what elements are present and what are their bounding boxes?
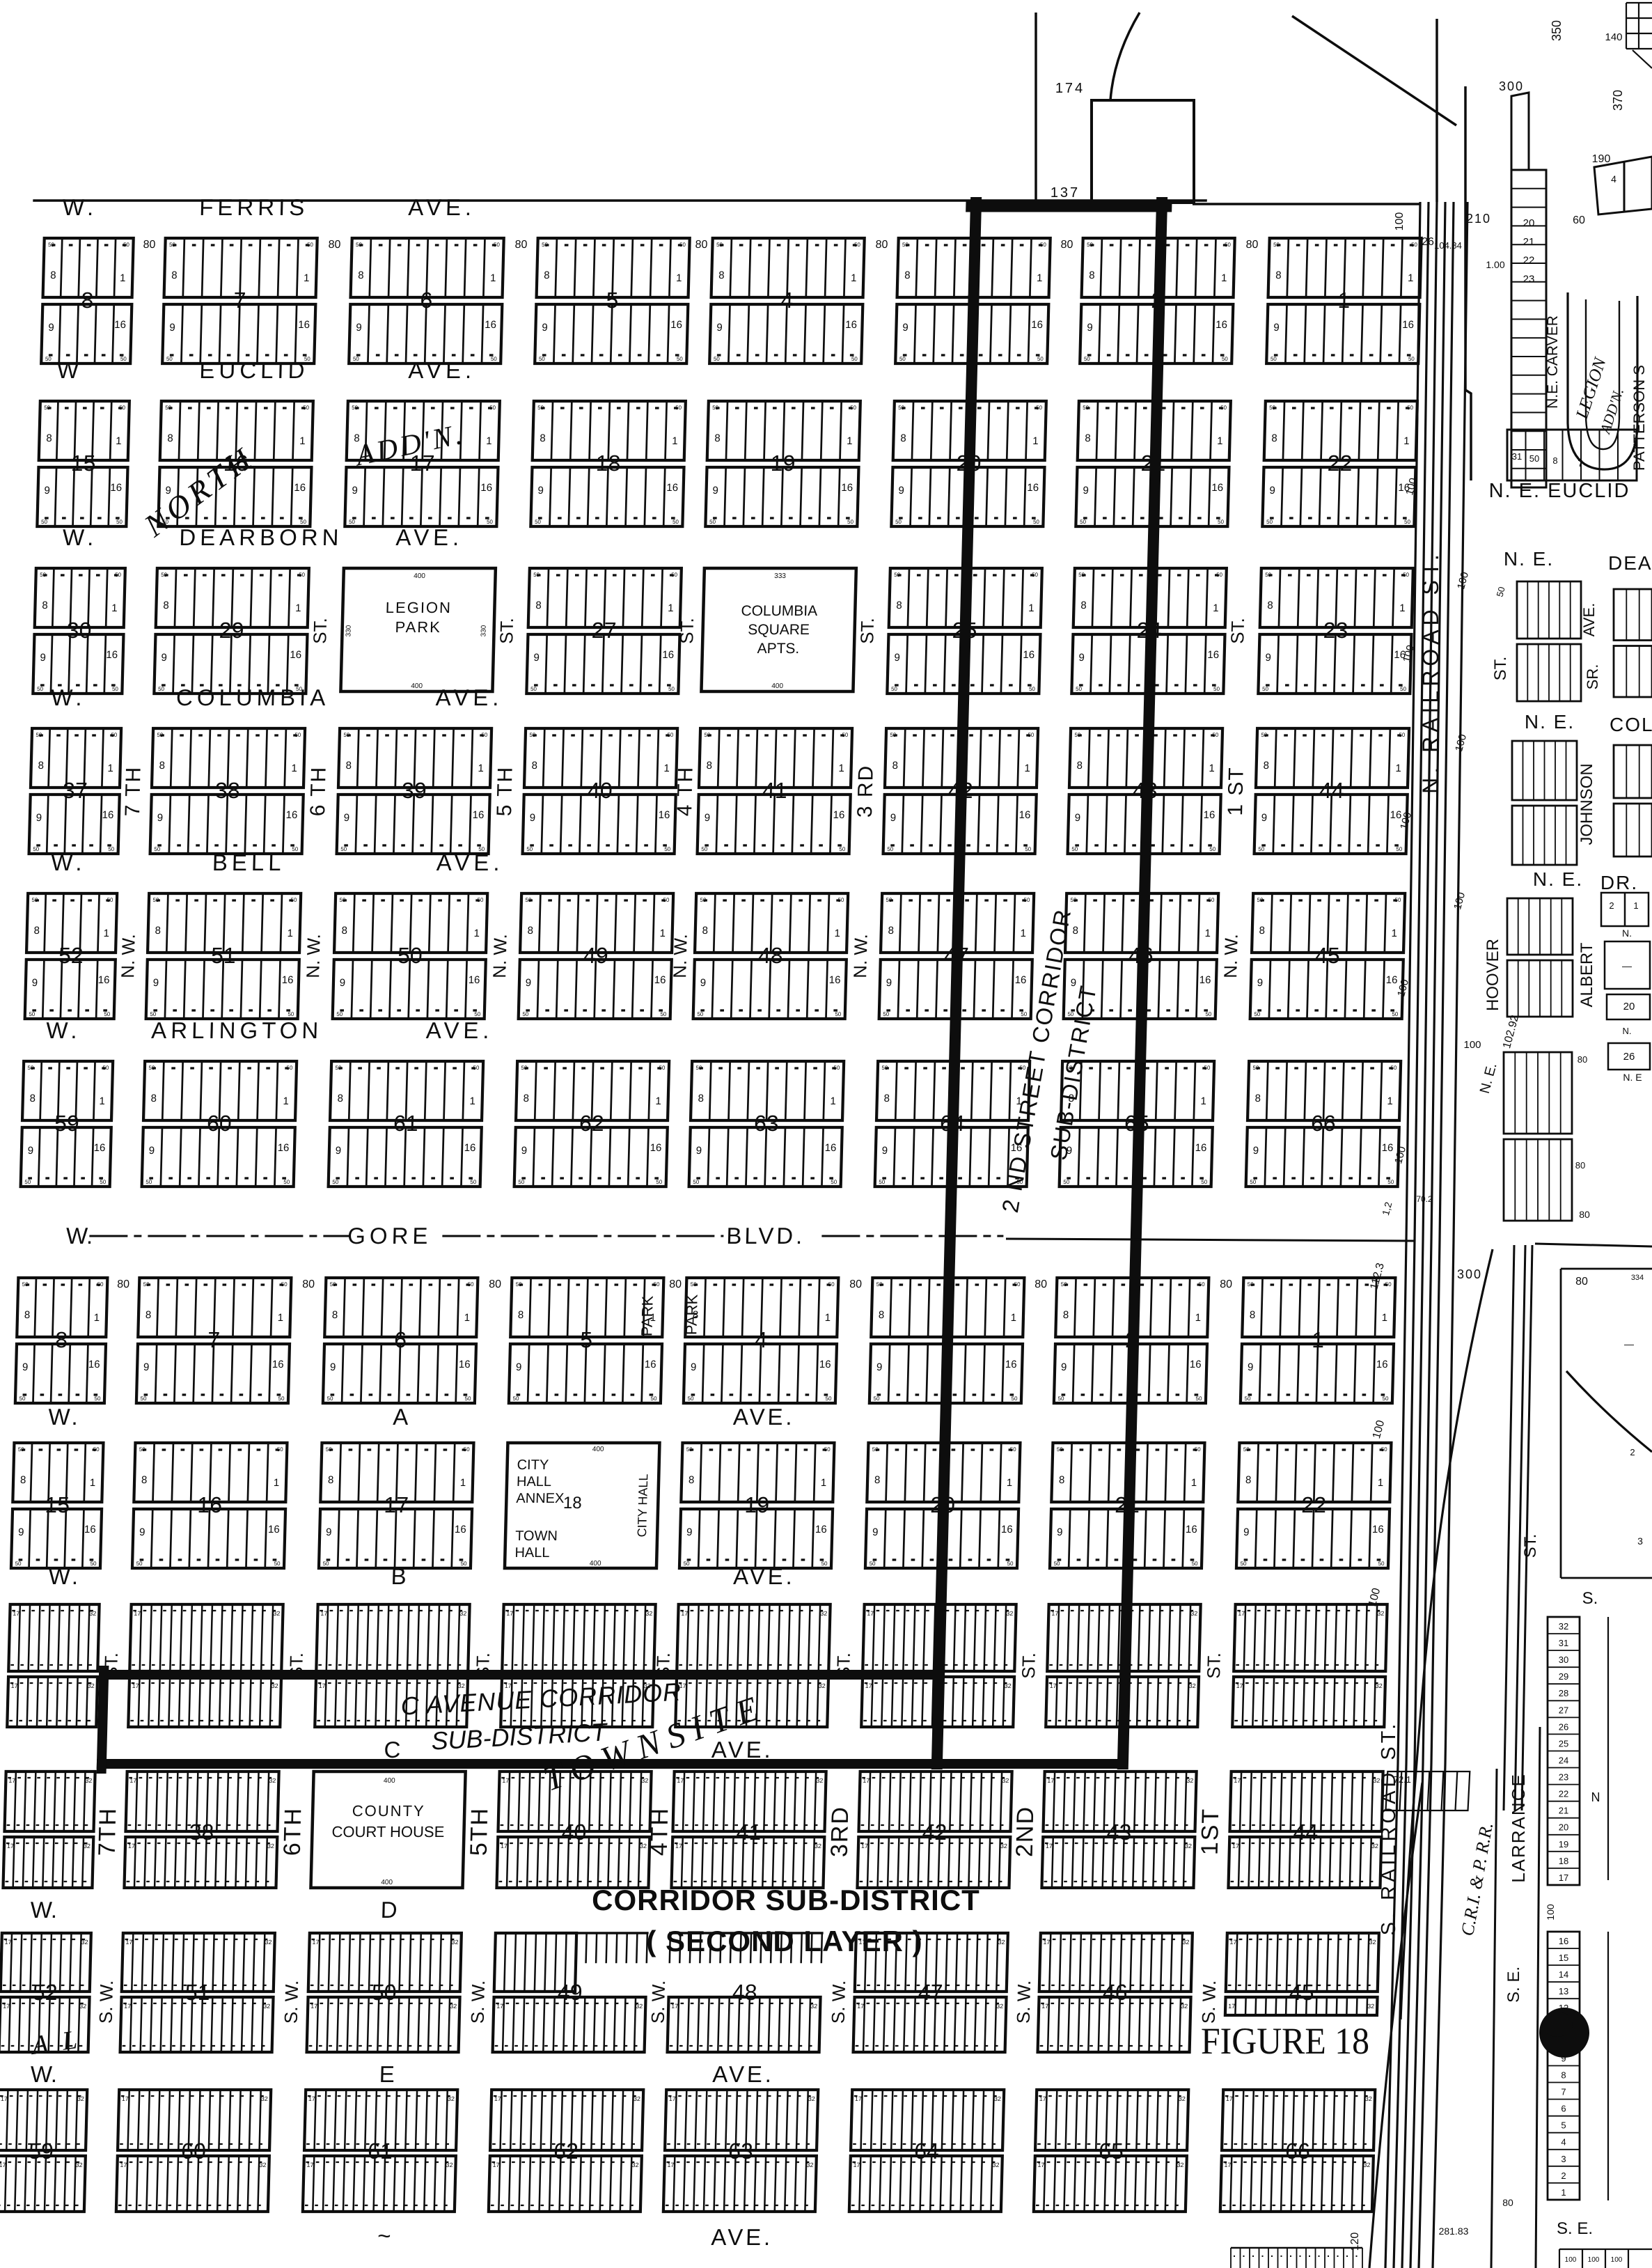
svg-text:32: 32: [1369, 1939, 1376, 1946]
svg-text:50: 50: [1204, 1065, 1211, 1071]
svg-text:9: 9: [530, 812, 536, 824]
svg-text:32: 32: [1363, 2161, 1370, 2168]
svg-text:1: 1: [287, 928, 293, 939]
svg-text:50: 50: [356, 242, 363, 248]
svg-text:8: 8: [163, 600, 169, 611]
svg-text:2: 2: [1630, 1447, 1635, 1457]
svg-text:50: 50: [1010, 1446, 1017, 1453]
svg-text:50: 50: [330, 1281, 337, 1288]
svg-text:32: 32: [89, 1610, 96, 1617]
svg-text:8: 8: [141, 1474, 148, 1486]
svg-text:32: 32: [448, 2095, 455, 2102]
svg-text:1: 1: [90, 1477, 96, 1489]
svg-text:50: 50: [281, 1281, 288, 1288]
svg-text:17: 17: [675, 1843, 682, 1849]
svg-text:80: 80: [514, 239, 527, 251]
svg-text:AVE.: AVE.: [712, 2061, 775, 2087]
svg-text:16: 16: [464, 1142, 475, 1154]
svg-text:1: 1: [1195, 1312, 1202, 1324]
svg-text:1: 1: [1399, 602, 1406, 614]
svg-text:17: 17: [129, 1777, 136, 1784]
svg-text:32: 32: [815, 1843, 821, 1849]
svg-text:50: 50: [1007, 1561, 1014, 1567]
svg-text:50: 50: [1011, 1395, 1018, 1402]
svg-text:300: 300: [1499, 79, 1524, 93]
svg-text:50: 50: [1192, 1561, 1199, 1567]
svg-text:37: 37: [63, 778, 88, 803]
svg-text:50: 50: [850, 405, 857, 411]
svg-text:9: 9: [1248, 1361, 1254, 1373]
svg-text:50: 50: [1408, 356, 1415, 362]
svg-text:50: 50: [19, 1395, 26, 1402]
svg-text:32: 32: [1000, 1843, 1007, 1849]
svg-text:2: 2: [1609, 900, 1614, 911]
svg-text:JOHNSON: JOHNSON: [1578, 763, 1596, 845]
svg-text:30: 30: [66, 618, 91, 643]
svg-text:50: 50: [18, 1446, 25, 1453]
svg-text:5TH: 5TH: [466, 1807, 494, 1856]
svg-text:17: 17: [867, 1610, 874, 1617]
svg-text:48: 48: [758, 943, 783, 968]
svg-text:7: 7: [1578, 458, 1582, 469]
svg-text:24: 24: [1559, 1755, 1568, 1766]
svg-text:8: 8: [540, 432, 546, 444]
svg-text:W: W: [57, 357, 84, 383]
svg-text:50: 50: [115, 572, 122, 578]
svg-text:8: 8: [527, 925, 533, 937]
svg-text:8: 8: [698, 1093, 704, 1104]
svg-text:9: 9: [691, 1361, 697, 1373]
svg-text:9: 9: [890, 812, 897, 824]
svg-text:9: 9: [336, 1145, 342, 1157]
svg-text:1: 1: [107, 762, 113, 774]
svg-text:16: 16: [1376, 1359, 1388, 1370]
svg-text:1: 1: [672, 435, 678, 447]
svg-text:1: 1: [1217, 435, 1223, 447]
svg-text:16: 16: [1027, 482, 1039, 494]
svg-text:50: 50: [307, 242, 314, 248]
svg-text:50: 50: [695, 1065, 702, 1071]
svg-text:APTS.: APTS.: [757, 641, 799, 657]
svg-text:50: 50: [1254, 1011, 1261, 1017]
svg-text:50: 50: [494, 242, 501, 248]
svg-text:50: 50: [1021, 1011, 1028, 1017]
svg-text:50: 50: [1248, 1281, 1254, 1288]
svg-text:17: 17: [1047, 1777, 1054, 1784]
svg-text:9: 9: [1269, 485, 1275, 496]
svg-text:17: 17: [1050, 1682, 1057, 1689]
svg-text:50: 50: [1266, 519, 1273, 525]
svg-text:17: 17: [502, 1777, 509, 1784]
svg-text:60: 60: [1573, 214, 1585, 226]
svg-text:80: 80: [1502, 2197, 1513, 2208]
svg-text:8: 8: [896, 600, 902, 611]
svg-text:50: 50: [477, 897, 484, 903]
svg-text:50: 50: [1076, 686, 1083, 692]
svg-text:1: 1: [1221, 272, 1227, 284]
svg-text:50: 50: [684, 1561, 691, 1567]
svg-text:8: 8: [1063, 1309, 1069, 1321]
svg-text:50: 50: [837, 897, 844, 903]
svg-text:80: 80: [1060, 239, 1073, 251]
svg-text:32: 32: [272, 1682, 278, 1689]
svg-text:80: 80: [875, 239, 888, 251]
svg-text:32: 32: [269, 1777, 276, 1784]
svg-text:1: 1: [830, 1095, 836, 1107]
svg-text:50: 50: [473, 1065, 480, 1071]
svg-text:16: 16: [1199, 974, 1211, 986]
svg-text:50: 50: [902, 242, 909, 248]
svg-text:8: 8: [1072, 925, 1078, 937]
svg-text:S. E.: S. E.: [1504, 1966, 1523, 2003]
svg-text:8: 8: [531, 760, 537, 772]
svg-text:1: 1: [659, 928, 666, 939]
svg-text:60: 60: [181, 2138, 206, 2164]
svg-text:50: 50: [1258, 846, 1265, 852]
svg-text:S. W.: S. W.: [647, 1980, 670, 2024]
svg-text:17: 17: [1559, 1872, 1568, 1883]
svg-text:8: 8: [718, 269, 725, 281]
svg-text:17: 17: [494, 2095, 501, 2102]
svg-text:41: 41: [736, 1820, 761, 1845]
svg-text:50: 50: [332, 1179, 339, 1185]
svg-text:80: 80: [143, 239, 155, 251]
svg-text:50: 50: [94, 1395, 101, 1402]
svg-text:3RD: 3RD: [826, 1806, 854, 1857]
svg-text:32: 32: [1559, 1621, 1568, 1632]
svg-text:32: 32: [1182, 1939, 1189, 1946]
svg-text:16: 16: [1381, 1142, 1393, 1154]
svg-text:32: 32: [1189, 1682, 1196, 1689]
svg-text:N. E.: N. E.: [1504, 548, 1554, 570]
svg-text:50: 50: [839, 846, 846, 852]
svg-text:17: 17: [128, 1843, 135, 1849]
svg-text:32: 32: [1006, 1610, 1013, 1617]
svg-text:80: 80: [1245, 239, 1258, 251]
svg-text:333: 333: [774, 572, 786, 580]
svg-text:50: 50: [157, 732, 164, 738]
svg-text:400: 400: [384, 1777, 395, 1785]
svg-text:32: 32: [631, 2161, 638, 2168]
svg-text:9: 9: [344, 812, 350, 824]
svg-text:15: 15: [45, 1492, 70, 1517]
svg-text:8: 8: [879, 1309, 885, 1321]
svg-text:PARK: PARK: [395, 618, 441, 636]
svg-text:32: 32: [641, 1777, 648, 1784]
svg-text:1.00: 1.00: [1486, 259, 1504, 270]
svg-text:66: 66: [1311, 1111, 1336, 1136]
svg-text:17: 17: [1224, 2161, 1231, 2168]
svg-text:47: 47: [918, 1980, 943, 2005]
svg-text:50: 50: [1399, 732, 1406, 738]
svg-text:80: 80: [1220, 1278, 1232, 1290]
svg-text:BLVD.: BLVD.: [726, 1223, 805, 1249]
svg-text:50: 50: [27, 1065, 34, 1071]
svg-text:17: 17: [1226, 2095, 1233, 2102]
svg-text:DEARBORN: DEARBORN: [179, 524, 343, 550]
svg-text:16: 16: [833, 809, 844, 821]
svg-text:9: 9: [1083, 485, 1089, 496]
svg-text:50: 50: [145, 1179, 152, 1185]
svg-text:N. W.: N. W.: [1220, 934, 1242, 978]
svg-text:50: 50: [533, 572, 540, 578]
svg-text:50: 50: [898, 405, 905, 411]
svg-text:8: 8: [328, 1474, 334, 1486]
svg-text:50: 50: [1201, 1179, 1208, 1185]
svg-text:50: 50: [709, 519, 716, 525]
svg-text:1: 1: [1024, 762, 1030, 774]
svg-text:9: 9: [902, 322, 908, 334]
svg-text:23: 23: [1323, 618, 1348, 643]
svg-text:8: 8: [24, 1309, 31, 1321]
svg-text:17: 17: [496, 2003, 503, 2010]
svg-text:50: 50: [847, 519, 854, 525]
svg-text:17: 17: [122, 2095, 129, 2102]
svg-text:50: 50: [1394, 897, 1401, 903]
svg-text:50: 50: [693, 1179, 700, 1185]
svg-text:16: 16: [277, 1142, 289, 1154]
svg-text:8: 8: [883, 1093, 890, 1104]
svg-text:27: 27: [591, 618, 616, 643]
svg-text:26: 26: [1422, 236, 1434, 248]
svg-text:17: 17: [671, 2003, 678, 2010]
svg-text:50: 50: [154, 846, 161, 852]
svg-text:17: 17: [1236, 1682, 1243, 1689]
svg-text:16: 16: [285, 809, 297, 821]
svg-text:50: 50: [303, 405, 310, 411]
svg-text:50: 50: [876, 1281, 883, 1288]
svg-text:17: 17: [306, 2161, 313, 2168]
svg-text:16: 16: [294, 482, 306, 494]
svg-text:50: 50: [895, 519, 902, 525]
svg-text:50: 50: [1063, 1179, 1070, 1185]
svg-text:17: 17: [1041, 2003, 1048, 2010]
svg-text:17: 17: [506, 1610, 513, 1617]
svg-text:S. W.: S. W.: [1198, 1980, 1220, 2024]
svg-text:50: 50: [1407, 405, 1414, 411]
svg-text:63: 63: [728, 2138, 753, 2164]
svg-text:16: 16: [1386, 974, 1398, 986]
svg-text:50: 50: [659, 1065, 666, 1071]
svg-text:9: 9: [40, 652, 46, 664]
svg-text:50: 50: [870, 1561, 876, 1567]
svg-text:N. E.: N. E.: [1533, 868, 1583, 890]
svg-text:3: 3: [1637, 1535, 1643, 1547]
svg-text:7TH: 7TH: [94, 1807, 122, 1856]
svg-text:S. W.: S. W.: [95, 1980, 118, 2024]
svg-text:50: 50: [821, 1561, 828, 1567]
svg-text:50: 50: [1225, 242, 1232, 248]
svg-text:9: 9: [1261, 812, 1268, 824]
svg-text:32: 32: [75, 2161, 82, 2168]
svg-text:22: 22: [1327, 451, 1352, 476]
svg-text:9: 9: [686, 1526, 693, 1538]
svg-text:30: 30: [1559, 1655, 1568, 1665]
svg-text:32: 32: [992, 2161, 999, 2168]
svg-text:A: A: [393, 1404, 411, 1430]
svg-text:400: 400: [592, 1446, 604, 1453]
svg-text:LEGION: LEGION: [386, 599, 453, 616]
svg-text:50: 50: [1078, 572, 1085, 578]
svg-text:50: 50: [112, 686, 119, 692]
svg-text:32: 32: [1377, 1610, 1384, 1617]
svg-text:1: 1: [1337, 288, 1351, 313]
svg-text:1 ST: 1 ST: [1224, 766, 1248, 815]
svg-text:9: 9: [716, 322, 723, 334]
svg-text:50: 50: [1199, 1281, 1206, 1288]
svg-text:8: 8: [337, 1093, 343, 1104]
svg-text:17: 17: [7, 1843, 14, 1849]
svg-text:50: 50: [686, 1446, 693, 1453]
svg-text:50: 50: [1080, 519, 1087, 525]
svg-text:16: 16: [815, 1524, 827, 1535]
svg-text:N. E: N. E: [1623, 1072, 1642, 1083]
svg-text:18: 18: [563, 1494, 582, 1512]
svg-text:50: 50: [294, 732, 301, 738]
svg-text:32: 32: [84, 1843, 91, 1849]
svg-text:32: 32: [1179, 2095, 1186, 2102]
svg-text:50: 50: [1071, 846, 1078, 852]
svg-text:8: 8: [888, 925, 894, 937]
svg-text:52: 52: [32, 1980, 57, 2005]
svg-text:100: 100: [1565, 2256, 1577, 2264]
svg-text:46: 46: [1102, 1980, 1127, 2005]
svg-text:50: 50: [872, 1446, 879, 1453]
svg-text:50: 50: [894, 572, 901, 578]
svg-text:70.2: 70.2: [1416, 1194, 1433, 1204]
svg-text:16: 16: [1031, 319, 1043, 331]
svg-text:17: 17: [4, 1939, 11, 1946]
svg-text:5 TH: 5 TH: [493, 766, 517, 816]
svg-text:50: 50: [825, 1395, 832, 1402]
svg-text:3: 3: [1561, 2154, 1566, 2164]
svg-text:50: 50: [290, 897, 297, 903]
svg-text:8: 8: [150, 1093, 157, 1104]
svg-text:1: 1: [291, 762, 297, 774]
svg-text:50: 50: [1083, 405, 1089, 411]
svg-text:1: 1: [1378, 1477, 1384, 1489]
svg-text:17: 17: [865, 1682, 872, 1689]
svg-text:1: 1: [1312, 1327, 1325, 1352]
svg-text:16: 16: [459, 1359, 471, 1370]
svg-text:COURT HOUSE: COURT HOUSE: [331, 1823, 444, 1840]
svg-text:16: 16: [98, 974, 110, 986]
svg-text:49: 49: [583, 943, 608, 968]
svg-text:17: 17: [312, 1939, 319, 1946]
svg-text:43: 43: [1106, 1820, 1131, 1845]
svg-text:16: 16: [485, 319, 496, 331]
svg-text:100: 100: [1588, 2256, 1600, 2264]
svg-text:9: 9: [352, 485, 358, 496]
svg-text:1: 1: [655, 1095, 661, 1107]
svg-text:32: 32: [1185, 1843, 1192, 1849]
svg-text:8: 8: [702, 925, 708, 937]
svg-text:50: 50: [1271, 356, 1277, 362]
svg-text:9: 9: [872, 1526, 879, 1538]
svg-text:8: 8: [689, 1474, 695, 1486]
svg-text:1: 1: [834, 928, 840, 939]
svg-text:16: 16: [1203, 809, 1215, 821]
svg-text:50: 50: [1382, 1395, 1389, 1402]
svg-text:50: 50: [158, 686, 165, 692]
svg-text:N. W.: N. W.: [669, 934, 691, 978]
svg-text:16: 16: [1018, 809, 1030, 821]
svg-text:8: 8: [29, 1093, 36, 1104]
svg-text:PATTERSON S: PATTERSON S: [1630, 365, 1648, 471]
svg-text:1: 1: [295, 602, 301, 614]
svg-text:FIGURE 18: FIGURE 18: [1201, 2020, 1369, 2062]
svg-text:20: 20: [1559, 1822, 1568, 1833]
svg-text:32: 32: [267, 1843, 274, 1849]
svg-text:15: 15: [70, 451, 95, 476]
svg-text:50: 50: [336, 1011, 343, 1017]
svg-text:16: 16: [824, 1142, 836, 1154]
svg-text:1: 1: [851, 272, 857, 284]
svg-text:W.: W.: [30, 2061, 57, 2087]
svg-text:COLUMBIA: COLUMBIA: [741, 603, 817, 619]
svg-text:50: 50: [97, 1281, 104, 1288]
svg-text:9: 9: [153, 977, 159, 989]
svg-text:50: 50: [116, 519, 123, 525]
svg-text:50: 50: [1404, 519, 1411, 525]
svg-text:16: 16: [88, 1359, 100, 1370]
svg-text:16: 16: [829, 974, 841, 986]
svg-text:S. W.: S. W.: [467, 1980, 489, 2024]
svg-text:9: 9: [898, 485, 904, 496]
svg-text:16: 16: [298, 319, 310, 331]
svg-text:16: 16: [1190, 1359, 1202, 1370]
svg-text:17: 17: [1238, 1610, 1245, 1617]
svg-text:9: 9: [1265, 652, 1271, 664]
svg-text:1: 1: [1213, 602, 1219, 614]
svg-text:8: 8: [345, 760, 352, 772]
svg-text:9: 9: [143, 1361, 150, 1373]
svg-text:80: 80: [695, 239, 707, 251]
svg-text:50: 50: [148, 1065, 155, 1071]
svg-text:17: 17: [8, 1777, 15, 1784]
svg-text:174: 174: [1055, 81, 1085, 96]
svg-text:281.83: 281.83: [1439, 2226, 1469, 2237]
svg-text:50: 50: [891, 686, 898, 692]
svg-text:17: 17: [1043, 1939, 1050, 1946]
svg-text:32: 32: [88, 1682, 95, 1689]
svg-text:50: 50: [1392, 1011, 1399, 1017]
svg-text:50: 50: [353, 356, 360, 362]
svg-text:50: 50: [1032, 572, 1039, 578]
svg-text:9: 9: [326, 1526, 332, 1538]
svg-text:18: 18: [595, 451, 620, 476]
svg-text:49: 49: [557, 1980, 582, 2005]
svg-text:45: 45: [1289, 1980, 1314, 2005]
svg-text:50: 50: [169, 242, 176, 248]
svg-text:8: 8: [1080, 600, 1087, 611]
svg-text:8: 8: [50, 269, 56, 281]
svg-text:16: 16: [645, 1359, 656, 1370]
svg-text:17: 17: [3, 2003, 10, 2010]
svg-text:D: D: [380, 1897, 398, 1923]
svg-text:17: 17: [319, 1682, 326, 1689]
svg-text:42: 42: [922, 1820, 947, 1845]
svg-text:50: 50: [120, 356, 127, 362]
svg-text:65: 65: [1099, 2138, 1124, 2164]
svg-text:16: 16: [1216, 319, 1227, 331]
svg-text:1: 1: [1403, 435, 1410, 447]
svg-text:1: 1: [486, 435, 492, 447]
svg-text:N. E.: N. E.: [1525, 711, 1575, 733]
svg-text:41: 41: [762, 778, 787, 803]
svg-text:50: 50: [326, 1446, 333, 1453]
svg-text:50: 50: [650, 1395, 657, 1402]
